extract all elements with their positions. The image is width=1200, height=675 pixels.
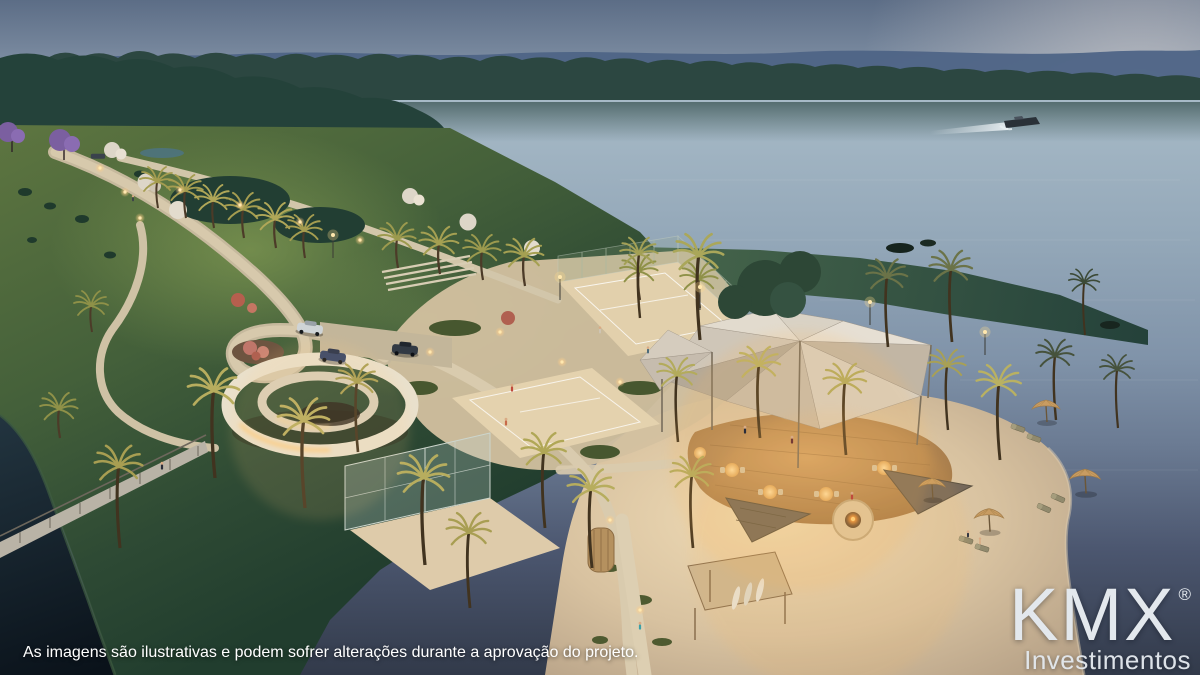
- person: [967, 530, 970, 537]
- pond: [140, 148, 184, 158]
- path-light: [95, 163, 105, 173]
- rocks: [920, 240, 936, 247]
- ambient-glow: [230, 340, 410, 520]
- registered-trademark-symbol: ®: [1178, 586, 1191, 603]
- path-light: [175, 185, 185, 195]
- treeline-reflection: [400, 102, 1200, 142]
- marketing-render: As imagens são ilustrativas e podem sofr…: [0, 0, 1200, 675]
- person: [161, 462, 164, 470]
- path-light: [615, 377, 625, 387]
- car: [91, 154, 105, 159]
- person: [132, 195, 134, 201]
- rocks: [1100, 321, 1120, 329]
- path-light: [355, 235, 365, 245]
- brand-tagline: Investimentos: [1009, 647, 1191, 674]
- path-light: [557, 357, 567, 367]
- path-light: [135, 213, 145, 223]
- brand-logo: KMX ® Investimentos: [1009, 584, 1191, 674]
- path-light: [495, 327, 505, 337]
- path-light: [425, 347, 435, 357]
- person: [505, 418, 508, 426]
- person: [791, 436, 794, 444]
- person: [744, 426, 747, 434]
- path-light: [295, 217, 305, 227]
- path-light: [120, 187, 130, 197]
- person: [511, 384, 514, 392]
- disclaimer-text: As imagens são ilustrativas e podem sofr…: [23, 643, 638, 662]
- path-light: [235, 200, 245, 210]
- person: [639, 622, 642, 630]
- person: [851, 492, 854, 500]
- path-light: [635, 605, 645, 615]
- brand-name: KMX: [1009, 584, 1175, 647]
- person: [599, 326, 602, 333]
- person: [979, 537, 982, 544]
- rocks: [886, 243, 914, 253]
- person: [647, 346, 650, 353]
- path-light: [605, 515, 615, 525]
